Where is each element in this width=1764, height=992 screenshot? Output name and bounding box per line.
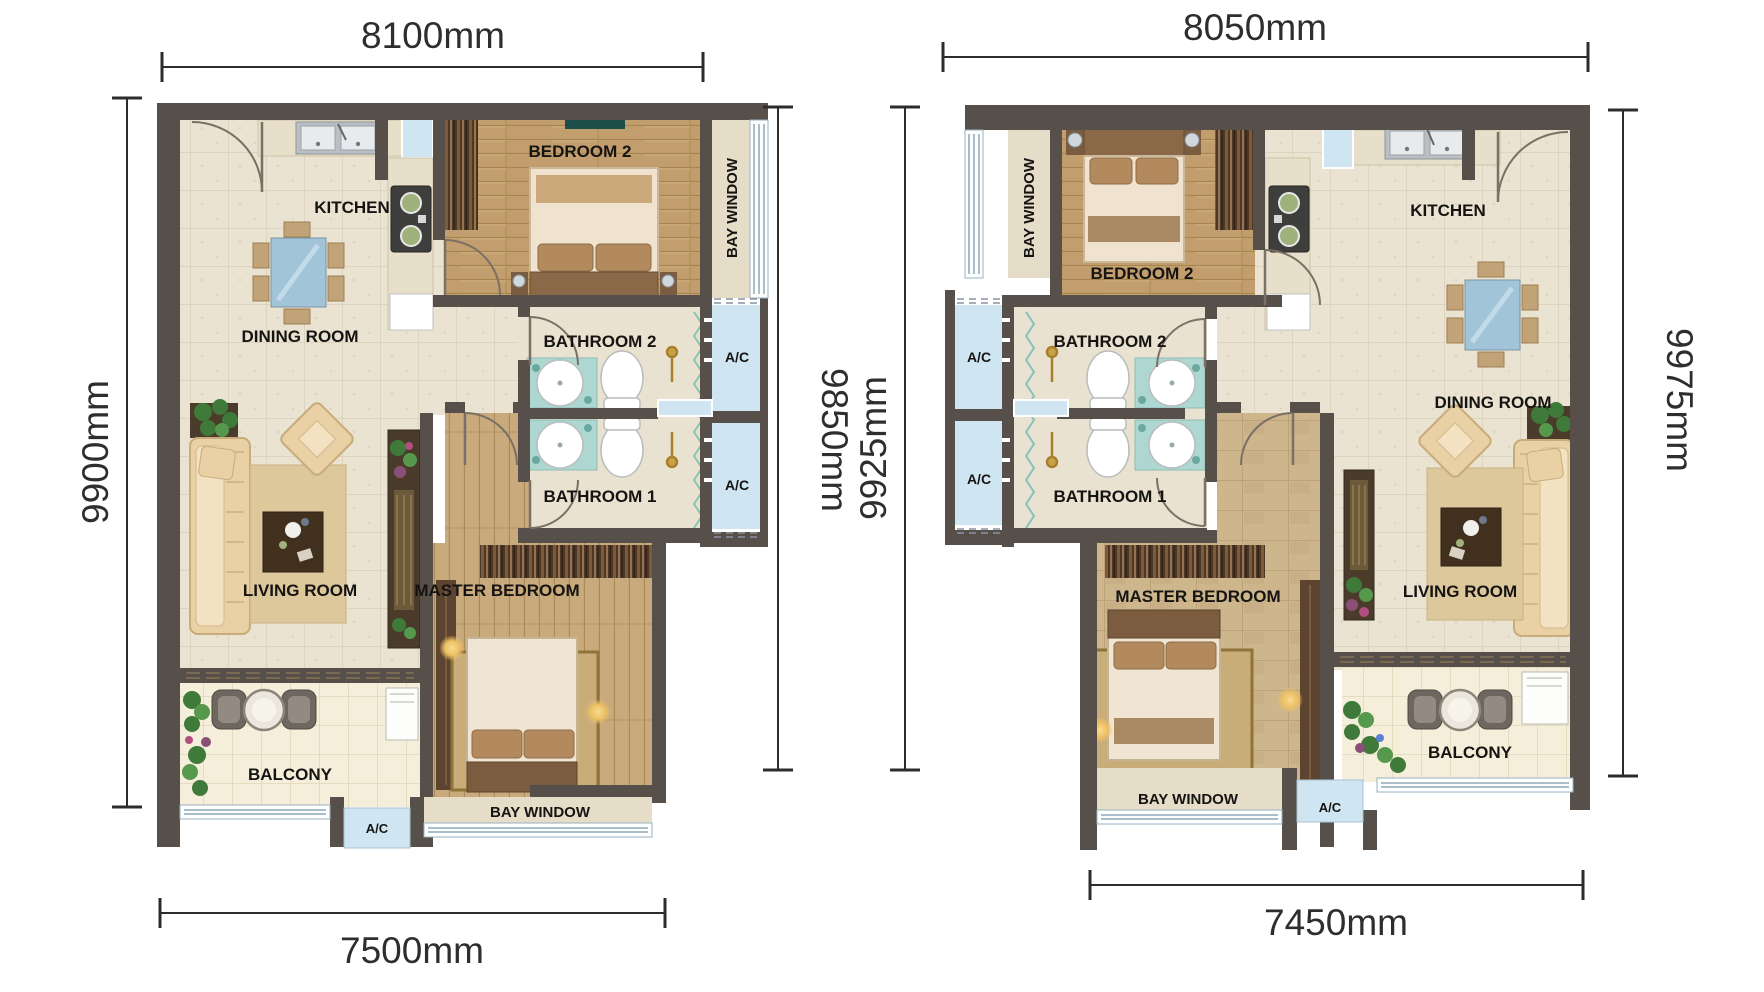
dim-top-right-unit: 8050mm — [943, 7, 1588, 72]
wall-living-balcony — [180, 668, 420, 683]
floor-plan-right-unit: 8050mm 9925mm 9975mm 7450mm KITCHEN DINI… — [853, 7, 1700, 943]
label-balcony-right: BALCONY — [1428, 743, 1513, 762]
master-closet-right — [1105, 545, 1265, 578]
kitchen-cabinet — [390, 294, 433, 330]
floor-plan-sheet: 8100mm 9900mm 9850mm 7500mm KITCHEN DINI… — [0, 0, 1764, 992]
label-bay-bottom-right: BAY WINDOW — [1138, 791, 1239, 808]
master-closet-left — [480, 545, 652, 578]
wall-bath-divider-right — [1057, 408, 1185, 419]
label-ac-lower-right: A/C — [967, 471, 991, 487]
label-bath1-left: BATHROOM 1 — [543, 487, 656, 506]
wall-entry-stub-right — [1462, 117, 1475, 180]
dim-label-left-right: 9925mm — [853, 376, 894, 520]
balcony-window-right — [1377, 778, 1573, 792]
label-ac-lower-left: A/C — [725, 477, 749, 493]
dim-label-top-right: 8050mm — [1183, 7, 1327, 48]
sofa-left — [190, 438, 250, 634]
wall-bath-right-b — [1205, 360, 1217, 482]
bedroom2-wardrobe-left — [445, 120, 478, 230]
bedroom2-bed-left — [511, 168, 677, 296]
bay-window-side-left — [750, 120, 768, 298]
wall-master-door-a — [445, 402, 465, 413]
wall-living-balcony-right — [1334, 652, 1573, 667]
planter-strip-right — [1344, 470, 1374, 620]
wall-master-left-right — [1080, 543, 1097, 850]
wall-top-left-unit — [157, 103, 768, 120]
label-dining-left: DINING ROOM — [241, 327, 358, 346]
bathroom1-fixtures-left — [527, 418, 643, 477]
kitchen-sink-right — [1385, 127, 1469, 159]
dim-right-right-unit: 9975mm — [1608, 110, 1700, 776]
wall-bay-bedroom2-right — [1050, 117, 1062, 300]
wall-ac-outer-right — [945, 290, 955, 540]
bathroom2-fixtures-right — [1087, 351, 1205, 410]
wall-ac-cap — [700, 532, 768, 547]
wall-stub-bay-right — [1282, 768, 1297, 850]
label-ac-bottom-left: A/C — [366, 821, 389, 836]
corridor-wood-left — [445, 413, 530, 543]
dim-label-bottom-right: 7450mm — [1264, 902, 1408, 943]
wall-stub-ac-left — [330, 797, 344, 847]
dim-label-left-left: 9900mm — [75, 380, 116, 524]
label-kitchen-right: KITCHEN — [1410, 201, 1486, 220]
ac-divider-right — [955, 409, 1002, 421]
balcony-cabinet-left — [386, 688, 418, 740]
wall-master-door-b — [513, 402, 530, 413]
wall-ac-outer — [760, 297, 768, 547]
wall-ac-cap-right — [945, 530, 1014, 545]
balcony-window-left — [180, 805, 330, 819]
wall-master-right — [652, 543, 666, 803]
coffee-table — [263, 512, 323, 572]
dim-right-left-unit: 9850mm — [763, 107, 855, 770]
dim-bottom-left-unit: 7500mm — [160, 898, 665, 971]
corridor-wood-right — [1217, 413, 1320, 543]
wall-stub-ac-right — [1363, 810, 1377, 850]
master-bed-left — [467, 638, 577, 792]
label-ac-upper-right: A/C — [967, 349, 991, 365]
wall-right-right-unit — [1570, 105, 1590, 810]
dim-left-right-unit: 9925mm — [853, 107, 920, 770]
label-master-left: MASTER BEDROOM — [414, 581, 579, 600]
wall-master-door-b-right — [1290, 402, 1320, 413]
dim-label-bottom-left: 7500mm — [340, 930, 484, 971]
master-bed-right — [1108, 610, 1220, 760]
bedroom2-wardrobe-right — [1215, 130, 1253, 230]
bedroom2-bed-right — [1066, 128, 1201, 262]
dim-bottom-right-unit: 7450mm — [1090, 870, 1583, 943]
coffee-table-right — [1441, 508, 1501, 566]
balcony-cabinet-right — [1522, 672, 1568, 724]
bathroom1-fixtures-right — [1087, 418, 1205, 477]
label-bath2-right: BATHROOM 2 — [1053, 332, 1166, 351]
dim-label-right-right: 9975mm — [1659, 328, 1700, 472]
label-bay-side-left: BAY WINDOW — [724, 157, 741, 258]
wall-bedroom2-bottom — [433, 295, 712, 307]
balcony-chairs-right — [1408, 690, 1512, 730]
dim-top-left-unit: 8100mm — [162, 15, 703, 82]
label-bay-side-right: BAY WINDOW — [1021, 157, 1038, 258]
dim-label-top-left: 8100mm — [361, 15, 505, 56]
label-master-right: MASTER BEDROOM — [1115, 587, 1280, 606]
wall-bay-ac-left-edge — [700, 117, 712, 547]
wall-bedroom2-bottom-right — [1008, 295, 1282, 307]
wall-master-door-a-right — [1217, 402, 1241, 413]
planter-strip-left — [388, 430, 420, 648]
label-dining-right: DINING ROOM — [1434, 393, 1551, 412]
bay-window-side-right — [965, 130, 983, 278]
floor-plan-canvas: 8100mm 9900mm 9850mm 7500mm KITCHEN DINI… — [0, 0, 1764, 992]
bath-window-right — [1014, 400, 1068, 416]
wall-master-bottom-right — [530, 785, 665, 798]
wall-ac-bath-right — [1002, 295, 1014, 547]
wall-bath-bottom — [518, 528, 712, 543]
label-bedroom2-left: BEDROOM 2 — [529, 142, 632, 161]
wall-bath-left-b — [518, 360, 530, 482]
floor-plan-left-unit: 8100mm 9900mm 9850mm 7500mm KITCHEN DINI… — [75, 15, 855, 971]
stove — [391, 186, 431, 252]
wall-bath-divider — [530, 408, 658, 419]
balcony-chairs-left — [212, 690, 316, 730]
wall-entry-stub — [375, 117, 388, 180]
wall-lamp-right — [1277, 687, 1303, 713]
wall-bath-left-a — [518, 295, 530, 317]
kitchen-window-right — [1323, 127, 1353, 168]
label-balcony-left: BALCONY — [248, 765, 333, 784]
label-bath1-right: BATHROOM 1 — [1053, 487, 1166, 506]
wall-living-master — [420, 413, 433, 847]
wall-bedroom2-kitchen-right — [1253, 128, 1265, 250]
wall-stub-bay-left — [410, 797, 424, 847]
label-ac-bottom-right: A/C — [1319, 800, 1342, 815]
ac-divider-left — [712, 411, 760, 423]
bathroom2-fixtures-left — [527, 351, 643, 410]
label-living-right: LIVING ROOM — [1403, 582, 1517, 601]
wall-bath-right-a — [1205, 295, 1217, 319]
label-bedroom2-right: BEDROOM 2 — [1091, 264, 1194, 283]
wall-bath-bottom-right — [1014, 528, 1207, 543]
dim-label-right-left: 9850mm — [814, 368, 855, 512]
label-bath2-left: BATHROOM 2 — [543, 332, 656, 351]
kitchen-sink — [296, 122, 380, 154]
wall-kitchen-bedroom2 — [433, 117, 445, 240]
label-living-left: LIVING ROOM — [243, 581, 357, 600]
label-bay-bottom-left: BAY WINDOW — [490, 804, 591, 821]
stove-right — [1269, 186, 1309, 252]
label-kitchen-left: KITCHEN — [314, 198, 390, 217]
wall-lamp — [585, 699, 611, 725]
wall-lamp — [439, 635, 465, 661]
bath-window-left — [658, 400, 712, 416]
kitchen-window — [402, 117, 433, 158]
label-ac-upper-left: A/C — [725, 349, 749, 365]
wall-left-left-unit — [157, 103, 180, 847]
dim-left-left-unit: 9900mm — [75, 98, 142, 807]
